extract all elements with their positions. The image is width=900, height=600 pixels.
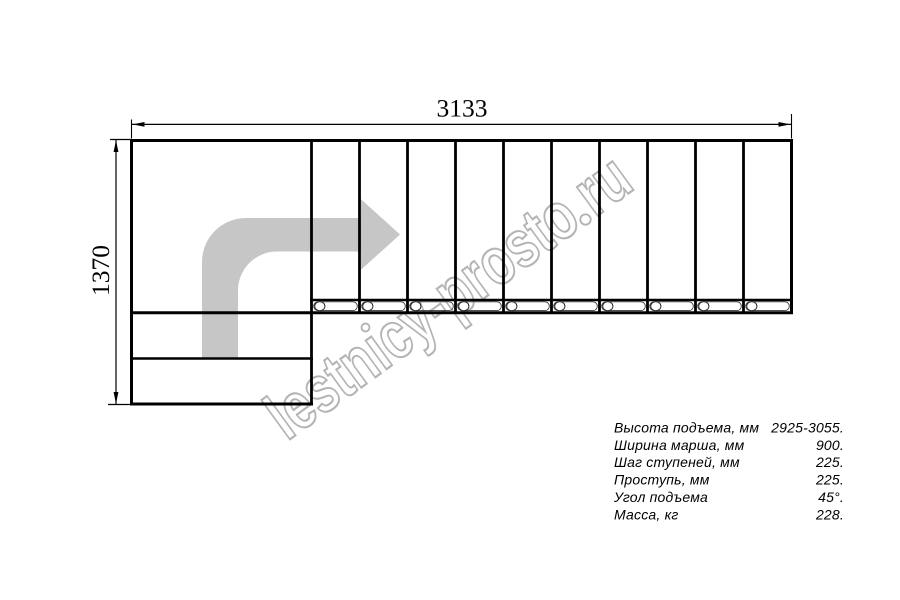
- svg-text:1370: 1370: [86, 245, 115, 296]
- svg-text:Масса, кг: Масса, кг: [614, 506, 679, 522]
- svg-text:Угол подъема: Угол подъема: [613, 489, 708, 505]
- svg-text:Высота подъема, мм: Высота подъема, мм: [614, 419, 759, 435]
- svg-text:3133: 3133: [437, 94, 488, 123]
- svg-text:225.: 225.: [815, 472, 844, 488]
- svg-text:2925-3055.: 2925-3055.: [770, 419, 844, 435]
- svg-text:Проступь, мм: Проступь, мм: [614, 472, 710, 488]
- svg-text:Ширина марша, мм: Ширина марша, мм: [614, 437, 745, 453]
- svg-text:45°.: 45°.: [818, 489, 844, 505]
- svg-text:Шаг ступеней, мм: Шаг ступеней, мм: [614, 454, 740, 470]
- svg-text:225.: 225.: [815, 454, 844, 470]
- svg-text:228.: 228.: [815, 506, 844, 522]
- svg-text:900.: 900.: [816, 437, 844, 453]
